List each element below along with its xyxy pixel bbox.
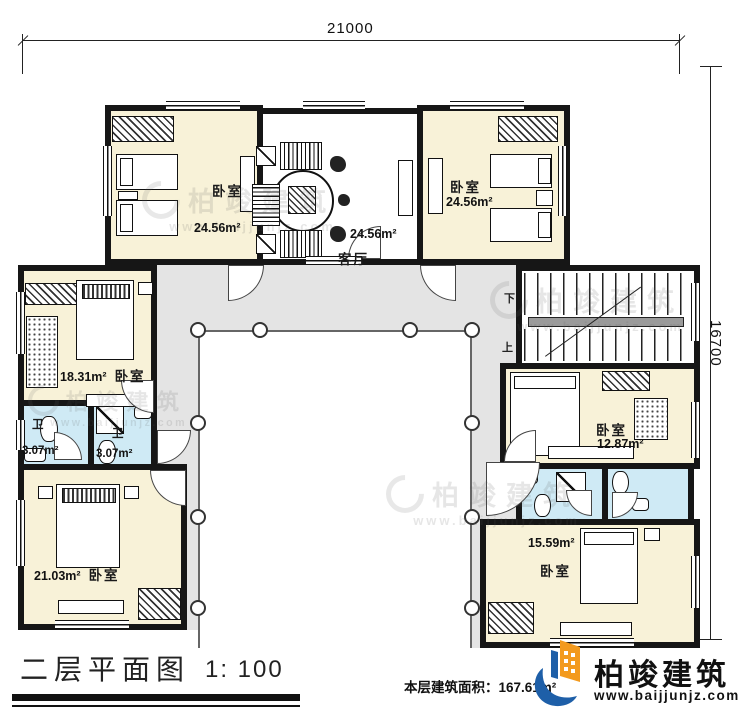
toilet [534,494,551,517]
plant-stand [256,234,276,254]
window [691,283,700,341]
dimension-tick [700,66,722,67]
window [691,556,700,608]
railing-post [190,509,206,525]
window [166,101,240,110]
window [55,620,129,629]
wardrobe [138,588,181,620]
bedroom-mid-right-area: 12.87m² [597,437,644,451]
dimension-tick [700,639,722,640]
plant [338,194,350,206]
bedroom-bottom-right-area: 15.59m² [528,536,575,550]
window [103,146,112,216]
desk [58,600,124,614]
table-center [288,186,316,214]
nightstand [536,190,553,206]
bathroom-divider-wall [602,469,608,519]
courtyard-void [198,330,472,648]
title-underline-thin [12,705,300,707]
window [16,292,25,354]
wardrobe [602,371,650,391]
window [558,146,567,216]
desk [560,622,632,636]
railing-post [402,322,418,338]
chair [252,184,280,226]
railing-post [464,322,480,338]
brand-logo-icon [530,638,592,717]
dimension-right-value: 16700 [707,320,724,367]
stair-down-label: 下 [504,290,515,306]
floor-plan-sheet: 下 上 [0,0,750,717]
pillow [538,212,551,238]
bedroom-top-right-label: 卧室 [450,176,481,196]
railing-post [190,322,206,338]
sofa [26,316,58,388]
pillow [584,532,634,545]
bath-left-1-label: 卫 [32,416,46,432]
bedroom-bottom-right-label: 卧室 [540,560,571,580]
wardrobe [25,283,82,305]
nightstand [38,486,53,499]
pillow [514,376,576,389]
plan-scale: 1: 100 [205,656,284,684]
dimension-line-top [22,40,680,41]
pillow [120,158,133,186]
armchair [634,398,668,440]
title-underline-thick [12,694,300,701]
bedroom-top-left-label: 卧室 [212,180,243,200]
nightstand [644,528,660,541]
railing-post [252,322,268,338]
window [16,500,25,566]
courtyard-walkway [157,265,516,330]
bedroom-mid-right-label: 卧室 [596,419,627,439]
living-room-label: 客厅 [338,248,369,268]
nightstand [138,282,153,295]
nightstand [118,191,138,200]
toilet [612,471,629,494]
railing-post [190,415,206,431]
window [303,101,365,110]
bedroom-top-right-area: 24.56m² [446,195,493,209]
railing-post [464,415,480,431]
stair-landing [528,317,684,327]
railing-post [464,509,480,525]
chair [280,230,322,258]
bedroom-mid-left-label: 18.31m²卧室 [60,365,146,385]
bath-left-2-label: 卫 [112,425,126,441]
window [691,402,700,458]
courtyard-walkway [472,519,480,648]
stair-up-label: 上 [502,339,513,355]
plant [330,156,346,172]
wardrobe [488,602,534,634]
chair [280,142,322,170]
wardrobe [112,116,174,142]
tv-stand [428,158,443,214]
railing-post [464,600,480,616]
plan-title: 二层平面图 [20,648,190,688]
living-room-area: 24.56m² [350,227,397,241]
plant [330,226,346,242]
pillow [538,158,551,184]
bedroom-top-left-area: 24.56m² [194,221,241,235]
wardrobe [498,116,558,142]
bedroom-bottom-left-label: 21.03m²卧室 [34,564,120,584]
plant-stand [256,146,276,166]
railing-post [190,600,206,616]
bath-left-1-area: 3.07m² [22,445,58,457]
pillow [62,488,116,503]
pillow [120,204,133,232]
pillow [82,284,130,299]
stair-flight-lower [524,329,692,361]
nightstand [124,486,139,499]
brand-website: www.baijjunjz.com [594,688,740,703]
window [450,101,524,110]
bath-left-2-area: 3.07m² [96,448,132,460]
dimension-top-value: 21000 [327,20,374,37]
tv-stand [398,160,413,216]
